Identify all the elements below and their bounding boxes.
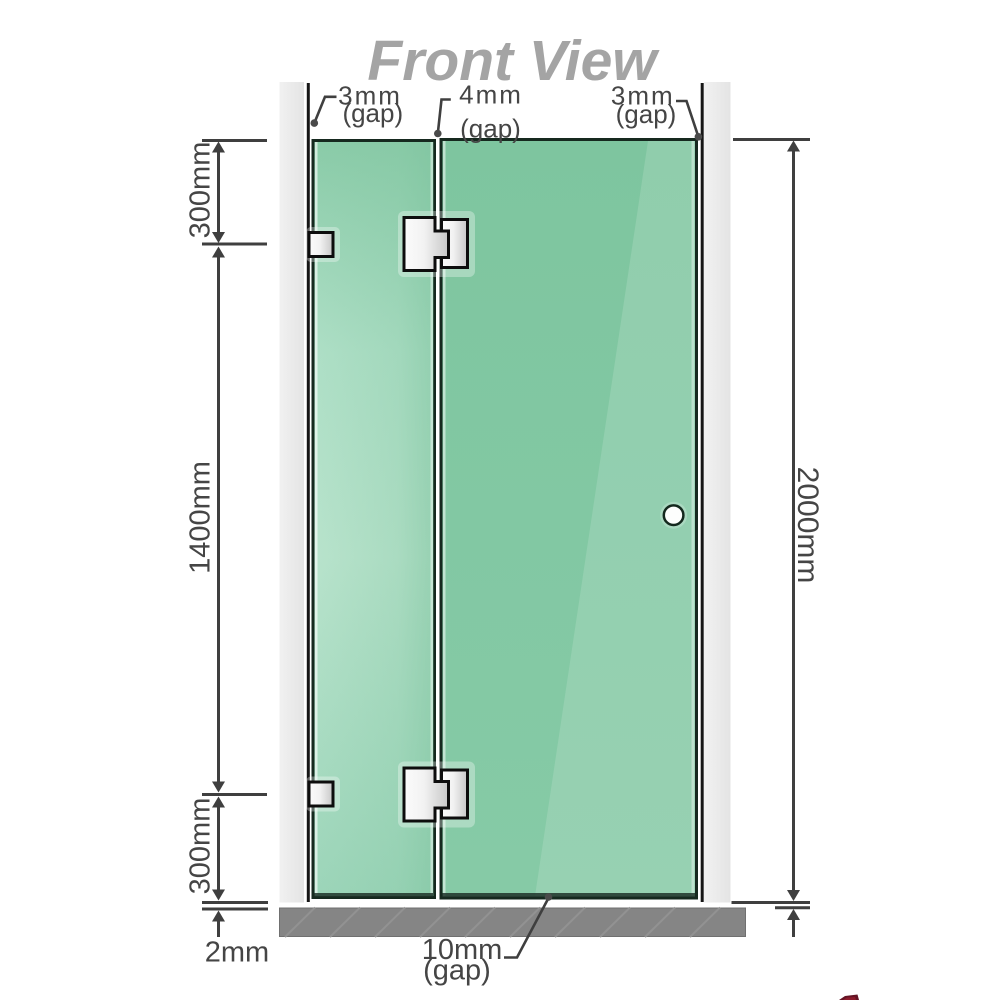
svg-text:300mm: 300mm <box>185 798 217 895</box>
svg-text:(gap): (gap) <box>342 98 403 128</box>
svg-text:300mm: 300mm <box>185 142 217 239</box>
svg-text:(gap): (gap) <box>460 113 521 143</box>
svg-text:2mm: 2mm <box>205 937 269 969</box>
svg-text:1400mm: 1400mm <box>185 461 217 574</box>
svg-text:4mm: 4mm <box>459 80 523 110</box>
svg-text:(gap): (gap) <box>616 99 677 129</box>
svg-text:2000mm: 2000mm <box>791 467 824 584</box>
svg-text:(gap): (gap) <box>423 955 491 987</box>
